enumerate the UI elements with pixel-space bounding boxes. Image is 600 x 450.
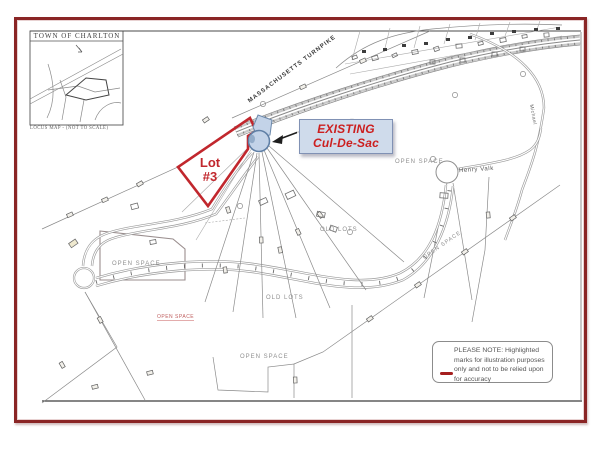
red-highlight-swatch (440, 372, 453, 375)
note-line-3: only and not to be relied upon (454, 365, 548, 375)
note-line-4: for accuracy (454, 375, 548, 385)
locus-inset-map (30, 31, 123, 125)
open-space-label-2: OPEN SPACE (395, 159, 444, 165)
locus-inset-caption: LOCUS MAP - (NOT TO SCALE) (30, 126, 108, 131)
lot3-label: Lot #3 (193, 156, 227, 185)
callout-line1: EXISTING (317, 123, 375, 137)
lot3-label-line1: Lot (200, 155, 220, 170)
callout-arrow (272, 131, 301, 144)
old-lots-label-1: OLD LOTS (320, 227, 358, 233)
callout-line2: Cul-De-Sac (313, 137, 379, 151)
existing-culdesac-callout: EXISTING Cul-De-Sac (299, 119, 393, 154)
note-line-1: PLEASE NOTE: Highlighted (454, 346, 548, 356)
open-space-label-3: OPEN SPACE (240, 354, 289, 360)
turnpike-road (234, 35, 580, 137)
open-space-label-highlighted: OPEN SPACE (157, 314, 194, 321)
lot3-label-line2: #3 (203, 169, 217, 184)
scanned-plan-page: TOWN OF CHARLTON LOCUS MAP - (NOT TO SCA… (0, 0, 600, 450)
note-line-2: marks for illustration purposes (454, 356, 548, 366)
old-lots-label-2: OLD LOTS (266, 295, 304, 301)
locus-inset-title: TOWN OF CHARLTON (31, 32, 123, 40)
building-footprints (69, 190, 449, 248)
loop-road (74, 153, 453, 288)
disclaimer-note-box: PLEASE NOTE: Highlighted marks for illus… (432, 341, 553, 383)
open-space-label-1: OPEN SPACE (112, 261, 161, 267)
